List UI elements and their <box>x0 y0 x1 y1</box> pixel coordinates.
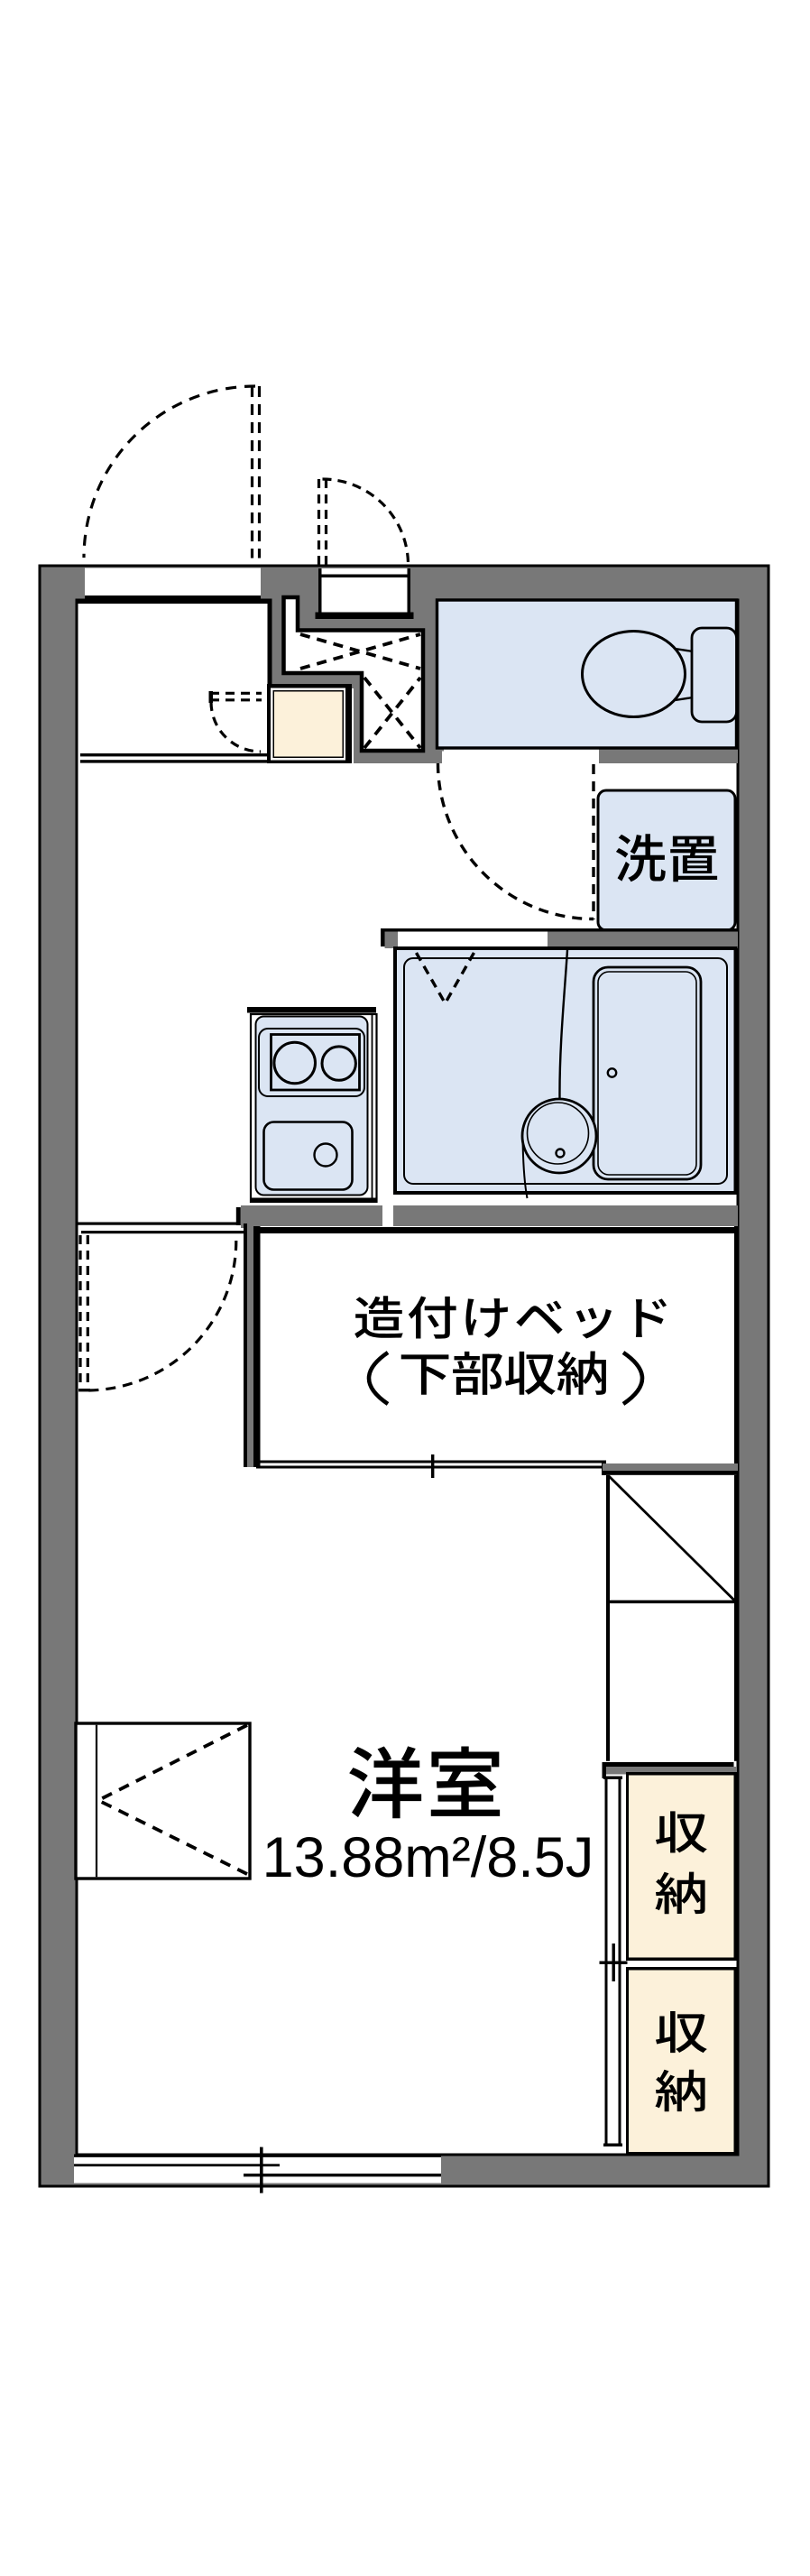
svg-text:13.88m²/8.5J: 13.88m²/8.5J <box>262 1826 594 1889</box>
